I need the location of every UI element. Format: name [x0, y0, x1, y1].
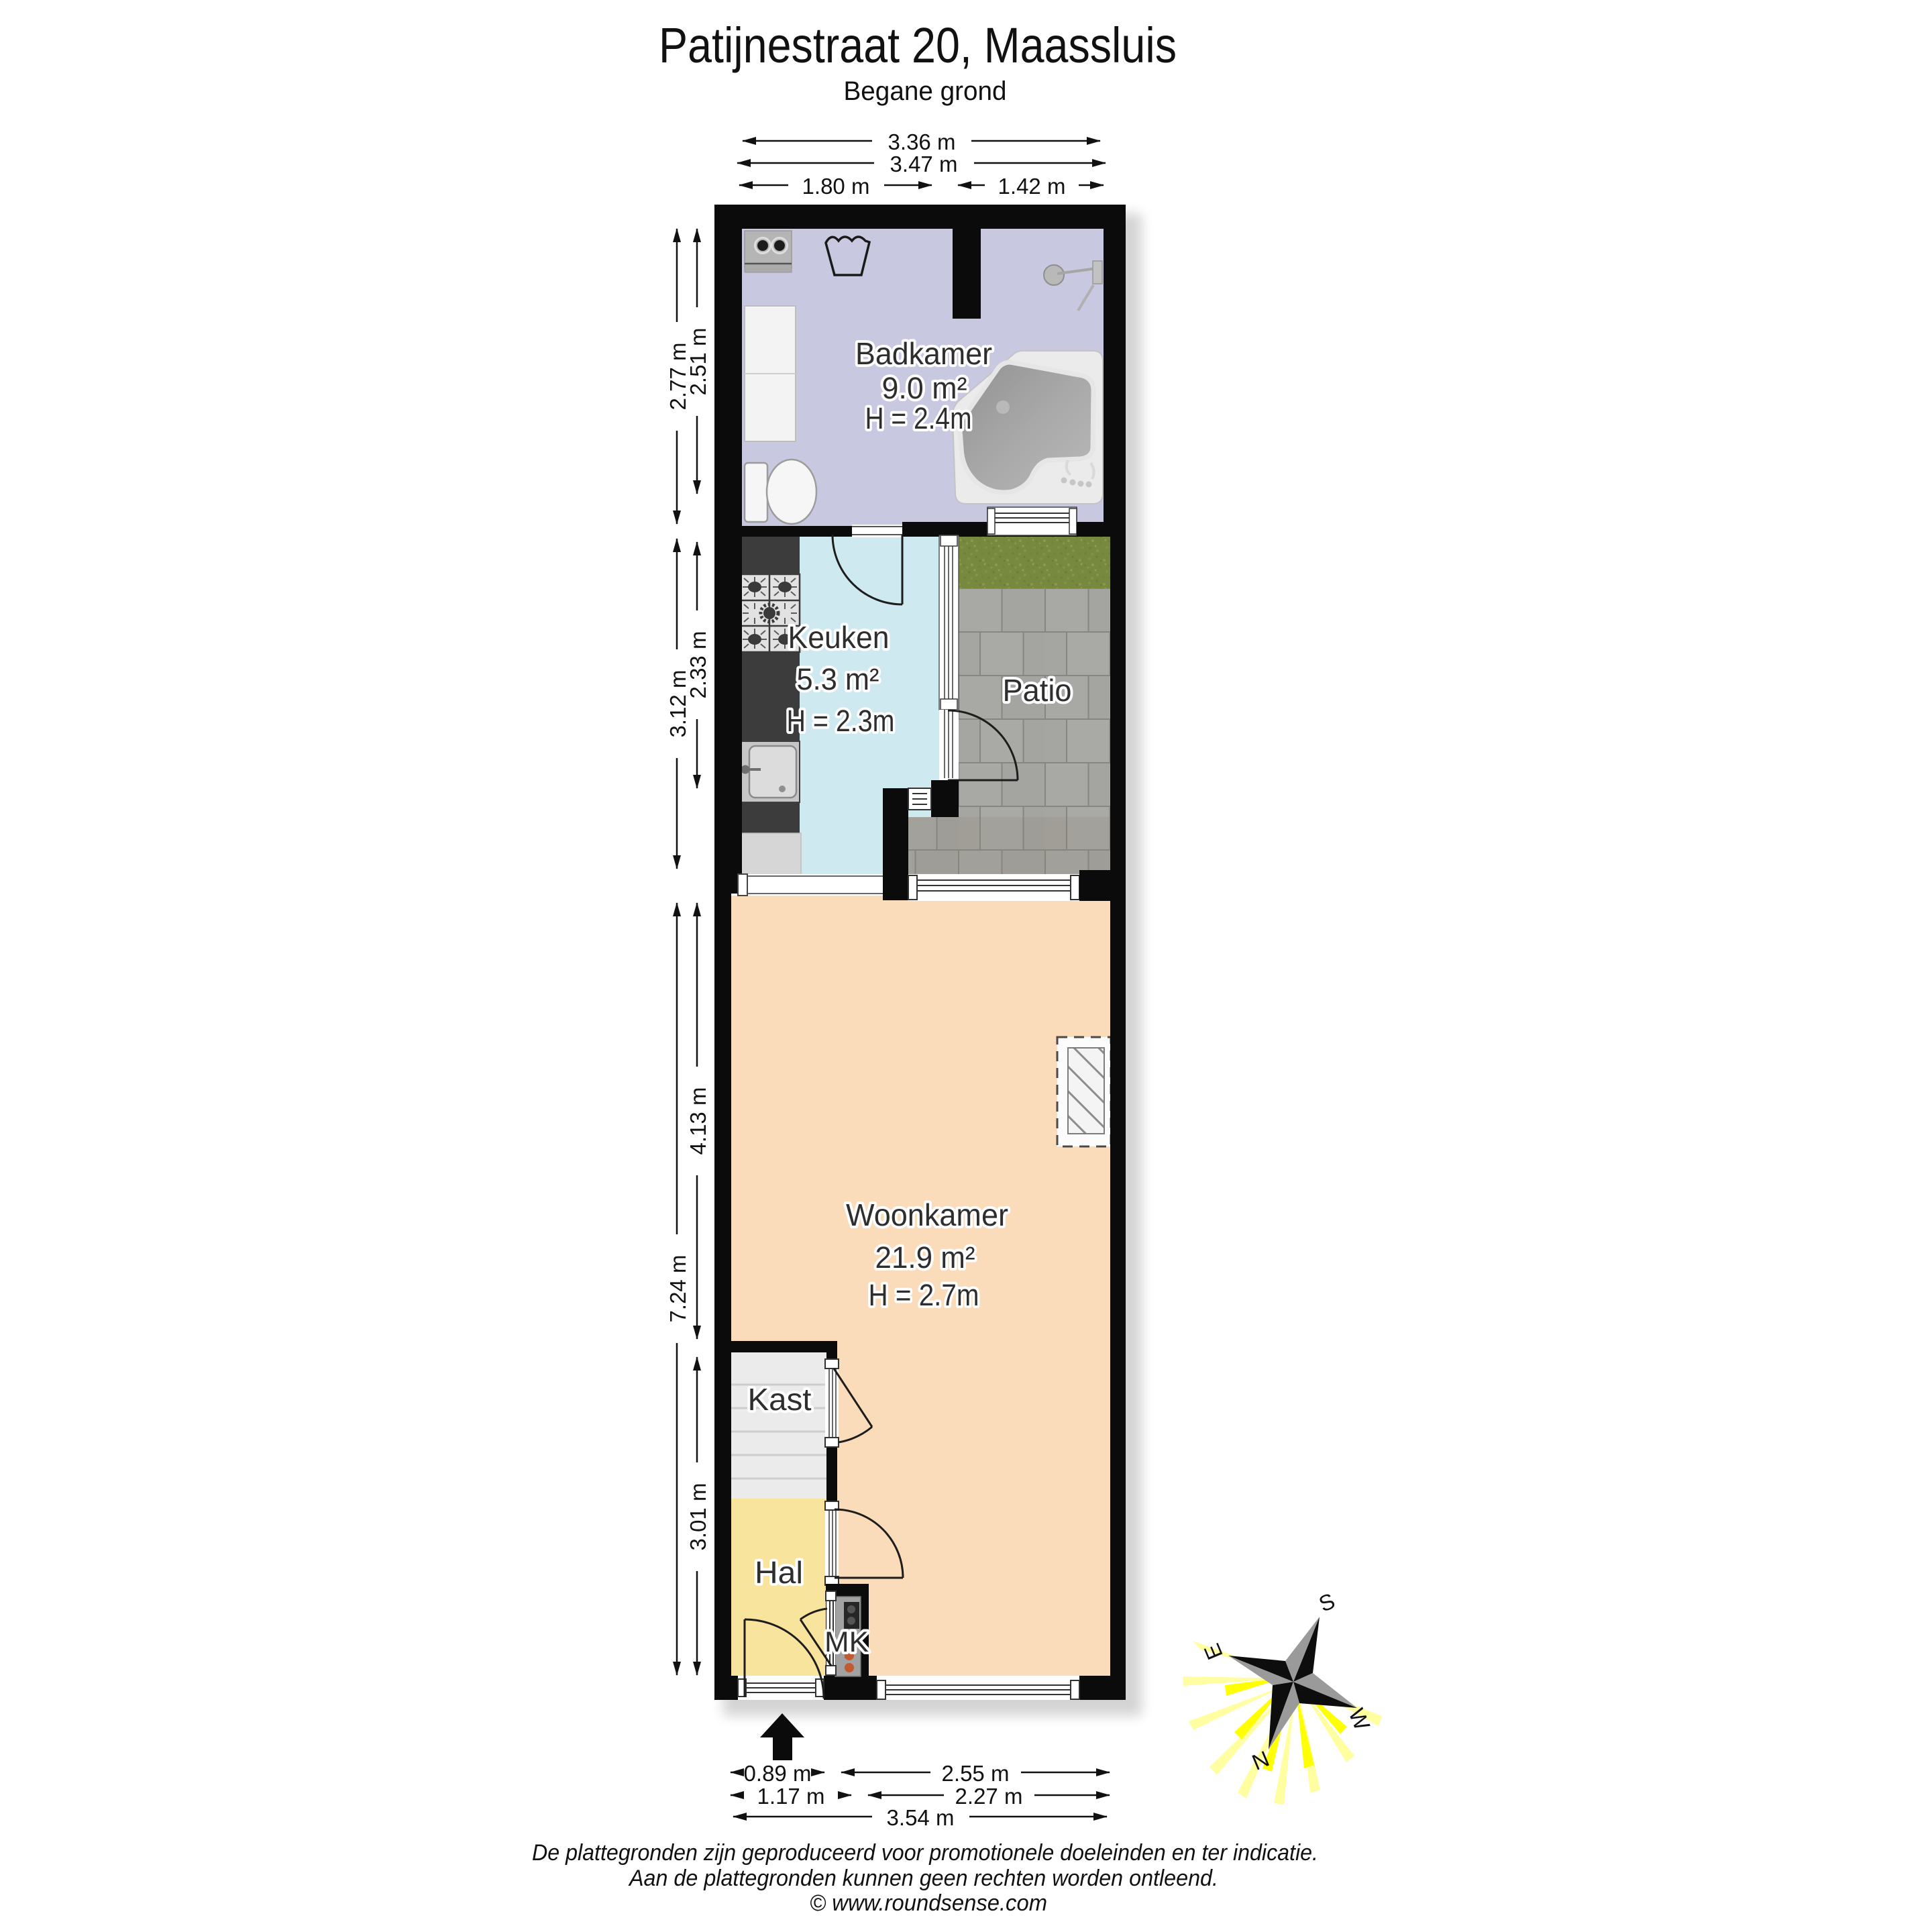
svg-text:5.3 m²: 5.3 m²	[797, 662, 879, 696]
svg-text:1.42 m: 1.42 m	[998, 174, 1066, 199]
svg-text:H = 2.4m: H = 2.4m	[865, 401, 972, 435]
svg-text:2.51 m: 2.51 m	[686, 328, 710, 396]
svg-text:Aan de plattegronden kunnen ge: Aan de plattegronden kunnen geen rechten…	[628, 1866, 1218, 1891]
svg-text:Woonkamer: Woonkamer	[846, 1197, 1008, 1232]
svg-text:1.80 m: 1.80 m	[802, 174, 870, 199]
svg-text:9.0 m²: 9.0 m²	[882, 371, 967, 405]
svg-text:Keuken: Keuken	[788, 620, 890, 655]
svg-text:Patio: Patio	[1003, 673, 1072, 708]
svg-text:Hal: Hal	[755, 1555, 803, 1590]
svg-text:2.55 m: 2.55 m	[942, 1761, 1010, 1786]
svg-text:© www.roundsense.com: © www.roundsense.com	[810, 1890, 1047, 1916]
svg-text:Patijnestraat 20, Maassluis: Patijnestraat 20, Maassluis	[659, 17, 1177, 73]
svg-text:Badkamer: Badkamer	[855, 336, 992, 371]
svg-text:4.13 m: 4.13 m	[686, 1087, 710, 1155]
svg-text:Begane grond: Begane grond	[844, 76, 1007, 106]
svg-text:H = 2.7m: H = 2.7m	[869, 1278, 979, 1312]
svg-text:2.27 m: 2.27 m	[955, 1784, 1023, 1809]
svg-text:H = 2.3m: H = 2.3m	[787, 704, 895, 738]
svg-text:7.24 m: 7.24 m	[665, 1255, 690, 1323]
svg-text:3.36 m: 3.36 m	[888, 129, 956, 154]
svg-text:0.89 m: 0.89 m	[744, 1761, 812, 1786]
svg-text:1.17 m: 1.17 m	[757, 1784, 825, 1809]
svg-text:MK: MK	[824, 1626, 869, 1658]
svg-text:De plattegronden zijn geproduc: De plattegronden zijn geproduceerd voor …	[532, 1840, 1318, 1866]
svg-text:3.54 m: 3.54 m	[887, 1805, 955, 1830]
svg-text:21.9 m²: 21.9 m²	[875, 1240, 975, 1275]
svg-text:2.33 m: 2.33 m	[686, 631, 710, 699]
svg-text:3.47 m: 3.47 m	[890, 152, 958, 176]
svg-text:3.01 m: 3.01 m	[686, 1483, 710, 1551]
svg-text:Kast: Kast	[748, 1382, 812, 1417]
